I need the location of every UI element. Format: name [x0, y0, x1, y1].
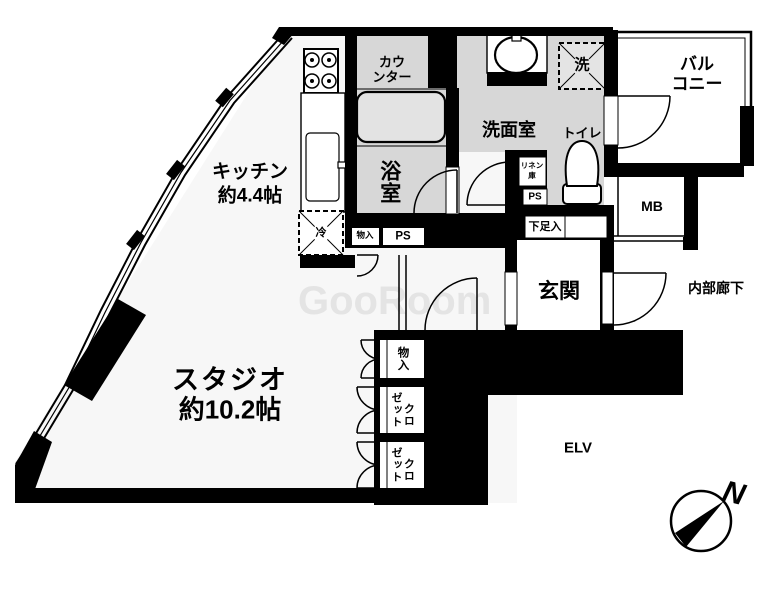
closet1-label-left: ゼット — [390, 392, 402, 428]
floor-plan: GooRoom — [0, 0, 761, 592]
kitchen-sink-icon — [301, 93, 348, 212]
linen-label-line2: 庫 — [528, 172, 536, 180]
toilet-label: トイレ — [562, 127, 601, 142]
elevator-label: ELV — [564, 441, 592, 458]
closet1-label: ゼット クロ — [390, 392, 415, 428]
washer-label: 洗 — [574, 58, 589, 75]
entrance-door-arc — [614, 273, 666, 325]
closet2-label-left: ゼット — [390, 447, 402, 483]
bathtub-icon — [357, 92, 445, 142]
pipe-space-label-hall: PS — [528, 191, 541, 202]
stove-icon — [304, 49, 338, 93]
corridor-label: 内部廊下 — [688, 281, 744, 297]
storage-label-band: 物入 — [356, 231, 373, 241]
storage-label-closet: 物入 — [396, 347, 409, 372]
entrance-label: 玄関 — [538, 280, 580, 304]
pipe-space-label-band: PS — [395, 231, 410, 244]
closet2-label-right: クロ — [402, 457, 414, 483]
balcony-door-arc — [618, 96, 670, 148]
floor-plan-drawing: GooRoom — [0, 0, 761, 592]
shoe-box-label: 下足入 — [529, 221, 562, 233]
closet1-label-right: クロ — [402, 402, 414, 428]
linen-label-line1: リネン — [521, 162, 544, 170]
toilet-icon — [563, 141, 601, 204]
meter-box-label: MB — [641, 199, 663, 215]
watermark: GooRoom — [298, 279, 491, 323]
counter-label-line2: ンター — [372, 71, 411, 86]
balcony-label-line1: バル — [680, 54, 714, 73]
counter-label-line1: カウ — [379, 56, 405, 71]
balcony-label-line2: コニー — [672, 74, 723, 93]
bathroom-label: 浴室 — [377, 160, 401, 204]
closet2-label: ゼット クロ — [390, 447, 415, 483]
washroom-label: 洗面室 — [482, 120, 536, 140]
fridge-label: 冷 — [316, 227, 327, 239]
studio-label: スタジオ — [172, 365, 288, 395]
studio-size: 約10.2帖 — [179, 395, 282, 424]
compass-north-label: N — [719, 475, 749, 513]
compass-icon: N — [671, 475, 750, 551]
kitchen-size: 約4.4帖 — [218, 185, 282, 206]
kitchen-label: キッチン — [212, 161, 288, 182]
washbasin-icon — [487, 31, 547, 73]
